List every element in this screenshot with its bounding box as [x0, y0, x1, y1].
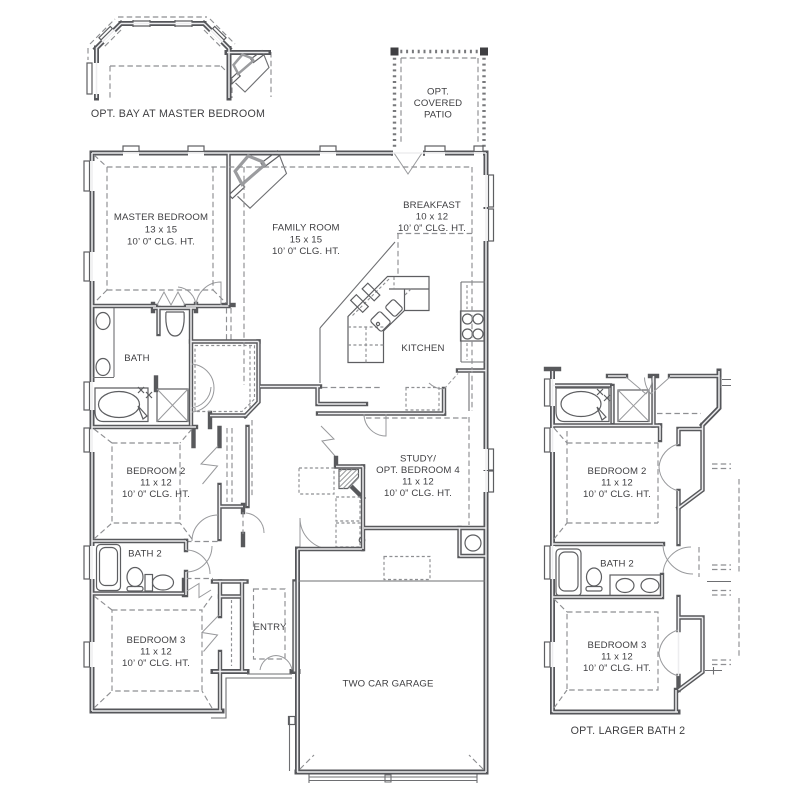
- svg-text:BATH 2: BATH 2: [600, 559, 634, 570]
- svg-text:BEDROOM 2: BEDROOM 2: [127, 466, 186, 477]
- svg-text:10’ 0” CLG. HT.: 10’ 0” CLG. HT.: [398, 223, 466, 234]
- svg-text:11 x 12: 11 x 12: [140, 478, 172, 489]
- svg-text:BEDROOM 3: BEDROOM 3: [588, 640, 647, 651]
- svg-text:COVERED: COVERED: [414, 98, 463, 109]
- svg-text:BATH: BATH: [124, 353, 149, 364]
- svg-text:13 x 15: 13 x 15: [145, 225, 178, 236]
- svg-text:OPT. BEDROOM 4: OPT. BEDROOM 4: [376, 465, 460, 476]
- svg-text:OPT. BAY AT MASTER BEDROOM: OPT. BAY AT MASTER BEDROOM: [91, 108, 265, 120]
- svg-text:OPT.: OPT.: [427, 87, 449, 98]
- svg-text:11 x 12: 11 x 12: [402, 477, 434, 488]
- svg-text:KITCHEN: KITCHEN: [401, 343, 444, 354]
- svg-text:OPT. LARGER BATH 2: OPT. LARGER BATH 2: [571, 725, 686, 737]
- svg-text:STUDY/: STUDY/: [400, 454, 436, 465]
- svg-text:11 x 12: 11 x 12: [601, 478, 633, 489]
- svg-text:10’ 0” CLG. HT.: 10’ 0” CLG. HT.: [272, 246, 340, 257]
- svg-text:10’ 0” CLG. HT.: 10’ 0” CLG. HT.: [122, 658, 190, 669]
- svg-text:BATH 2: BATH 2: [128, 549, 162, 560]
- svg-text:15 x 15: 15 x 15: [290, 235, 323, 246]
- svg-text:10 x 12: 10 x 12: [416, 212, 449, 223]
- svg-text:BEDROOM 2: BEDROOM 2: [588, 466, 647, 477]
- svg-text:FAMILY ROOM: FAMILY ROOM: [272, 223, 339, 234]
- svg-text:PATIO: PATIO: [424, 110, 452, 121]
- svg-text:BEDROOM 3: BEDROOM 3: [127, 635, 186, 646]
- svg-text:TWO CAR GARAGE: TWO CAR GARAGE: [342, 679, 433, 690]
- svg-text:BREAKFAST: BREAKFAST: [403, 200, 461, 211]
- svg-text:11 x 12: 11 x 12: [140, 647, 172, 658]
- svg-text:10’ 0” CLG. HT.: 10’ 0” CLG. HT.: [384, 488, 452, 499]
- svg-text:10’ 0” CLG. HT.: 10’ 0” CLG. HT.: [583, 663, 651, 674]
- svg-text:11 x 12: 11 x 12: [601, 652, 633, 663]
- svg-text:10’ 0” CLG. HT.: 10’ 0” CLG. HT.: [127, 237, 195, 248]
- svg-text:10’ 0” CLG. HT.: 10’ 0” CLG. HT.: [583, 489, 651, 500]
- svg-text:ENTRY: ENTRY: [253, 622, 287, 633]
- svg-text:MASTER BEDROOM: MASTER BEDROOM: [114, 212, 208, 223]
